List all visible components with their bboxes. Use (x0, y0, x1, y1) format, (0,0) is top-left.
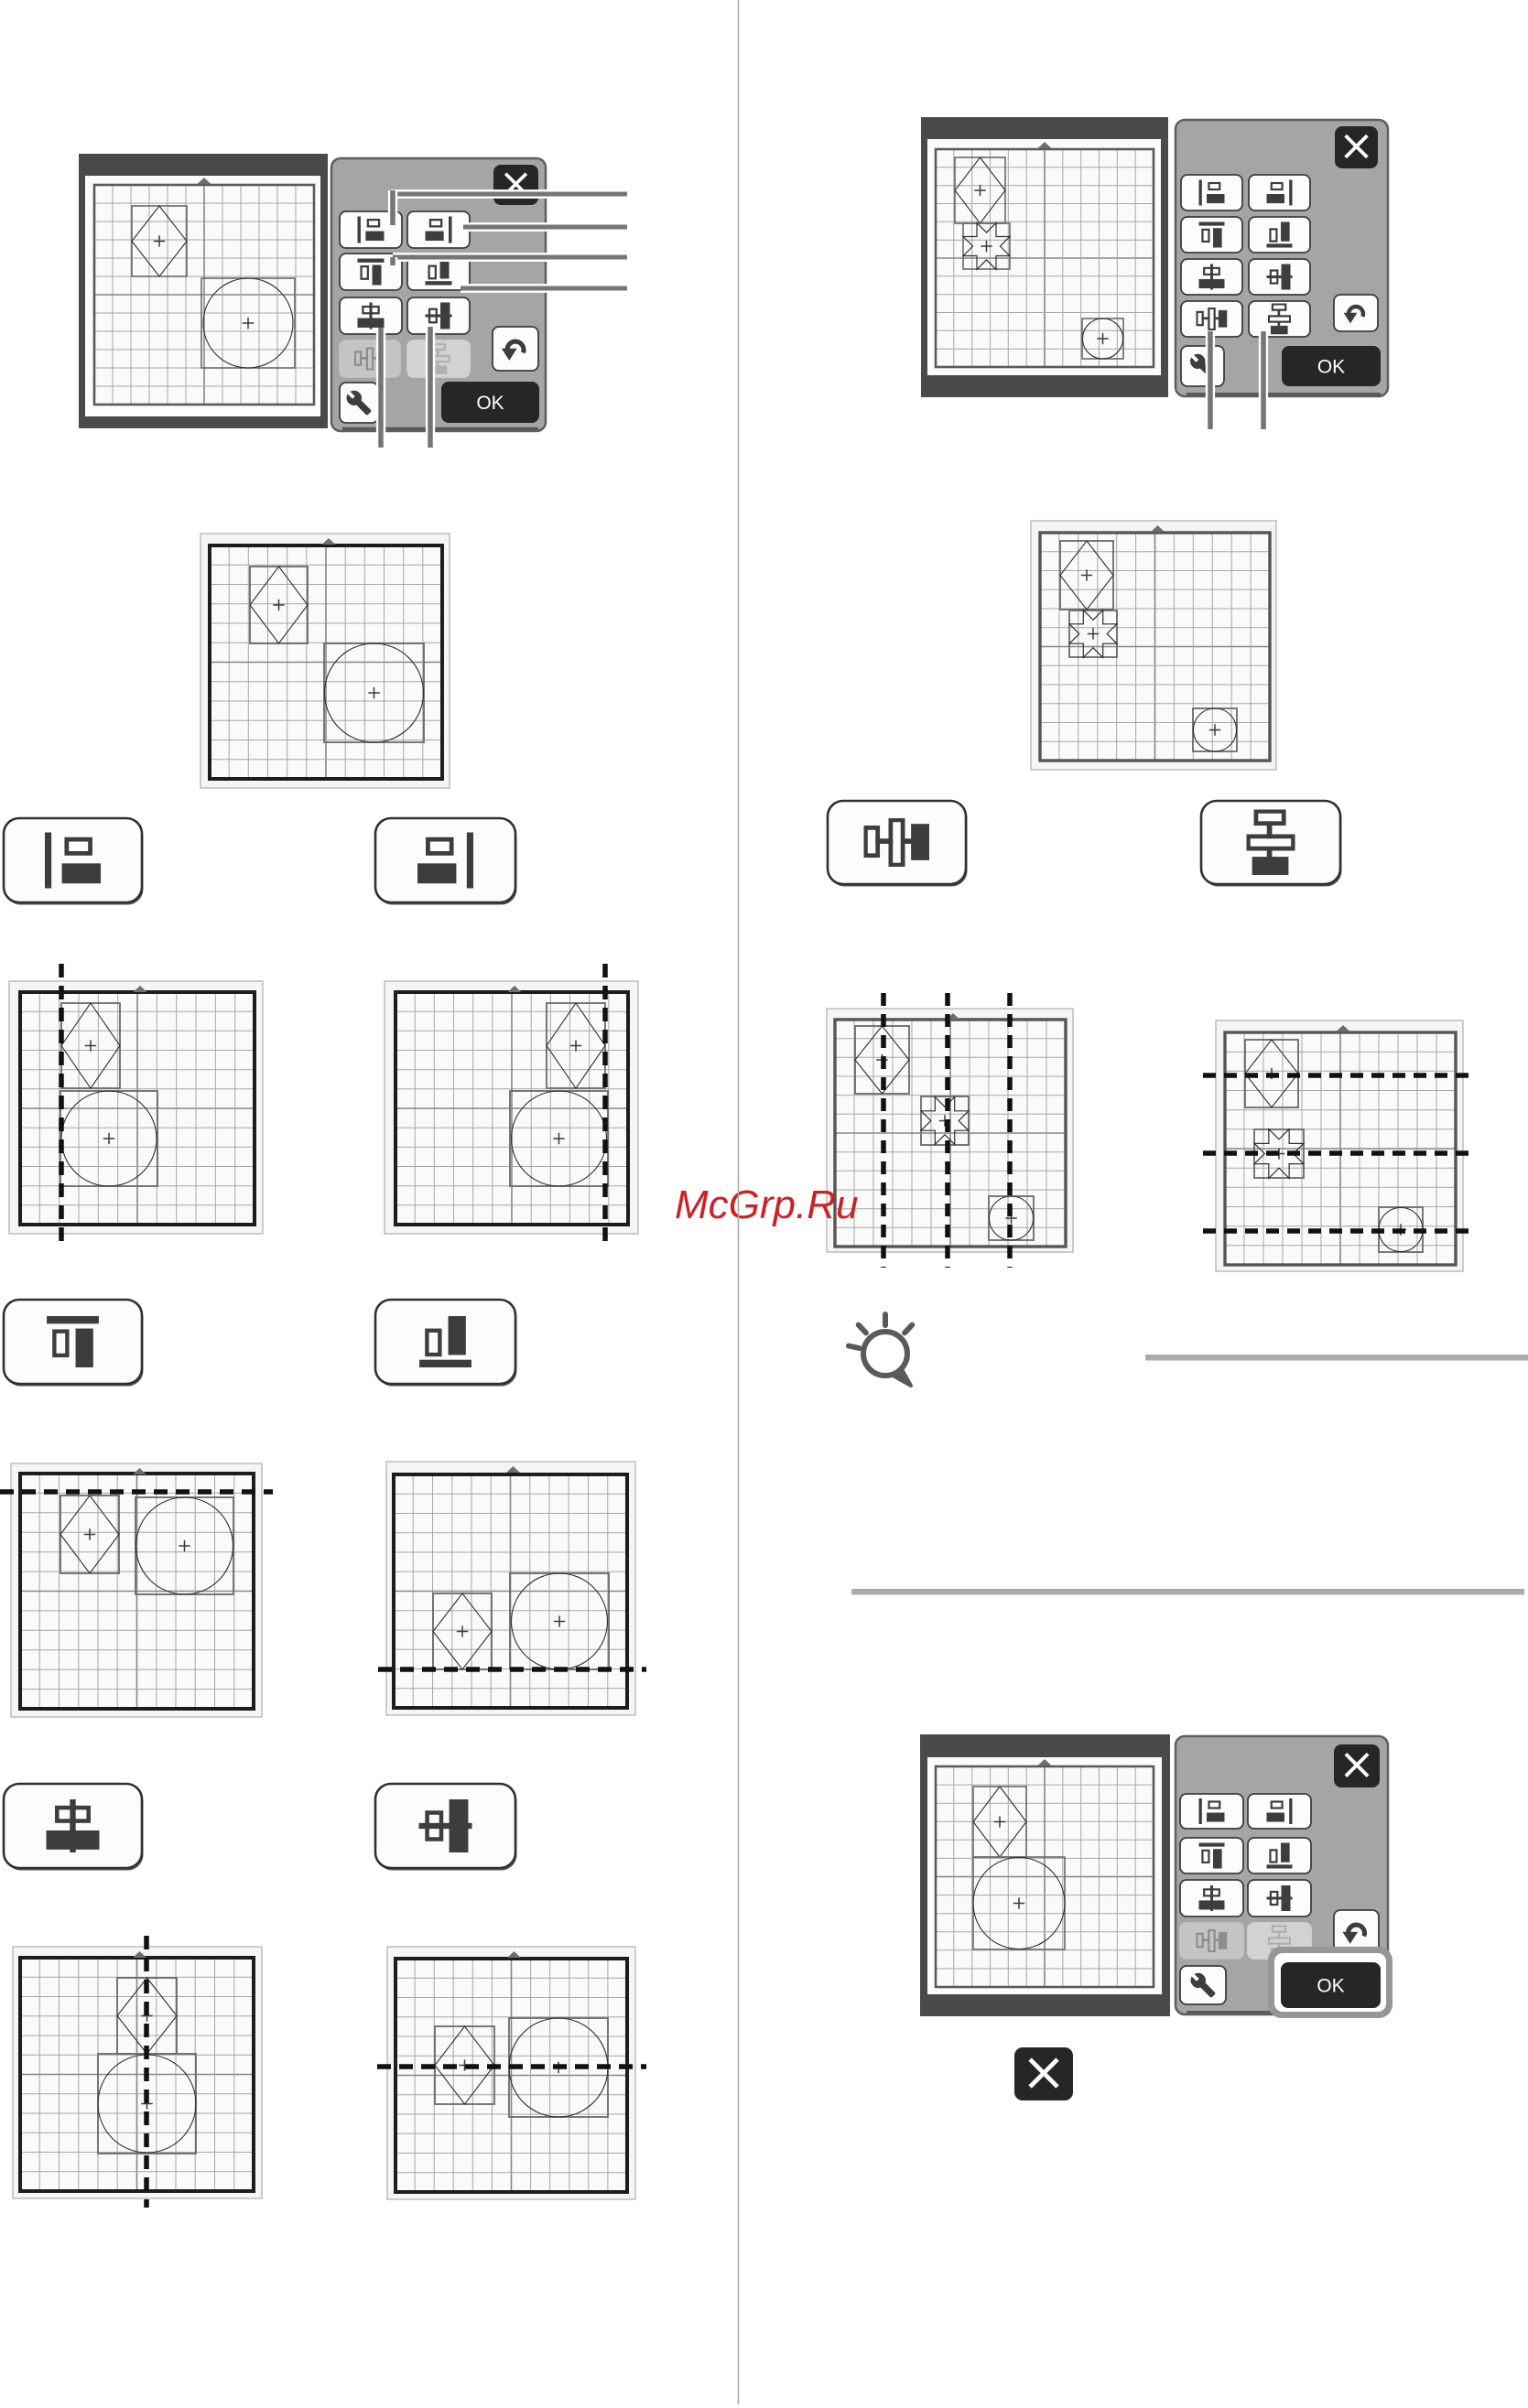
svg-text:McGrp.Ru: McGrp.Ru (675, 1182, 858, 1227)
svg-text:OK: OK (1317, 1975, 1344, 1996)
svg-text:OK: OK (1317, 356, 1345, 377)
svg-text:OK: OK (476, 393, 504, 414)
